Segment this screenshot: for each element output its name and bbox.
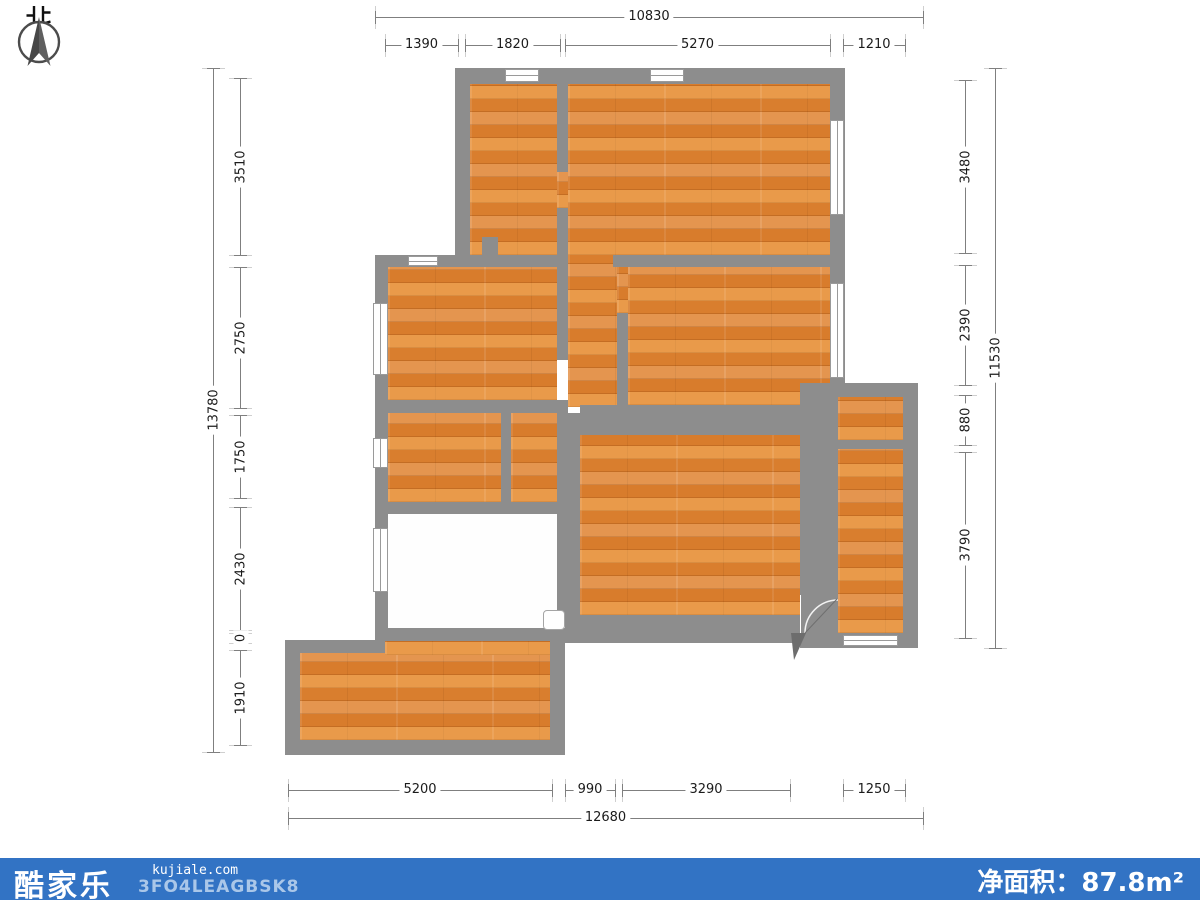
room-middle-left-floor [388, 267, 557, 400]
wall-below-midleft [375, 400, 568, 413]
room-bottom-left-floor-upper [385, 641, 550, 655]
dim-left-total: 13780 [213, 68, 214, 752]
room-unfloored [388, 514, 557, 628]
wall-interior-a1 [557, 84, 568, 172]
dim-left-seg-6: 1910 [240, 650, 241, 745]
wall-right-section-right [903, 383, 918, 648]
dim-bottom-seg-3: 3290 [622, 790, 790, 791]
dim-right-seg-2: 2390 [965, 265, 966, 385]
website-text: kujiale.com [152, 863, 238, 878]
window-right-1 [830, 120, 844, 215]
wall-unfloored-right [557, 413, 580, 615]
net-area-unit: m² [1146, 868, 1184, 898]
wall-interior-b [617, 313, 628, 407]
window-top-2 [650, 69, 684, 82]
dim-right-total: 11530 [995, 68, 996, 648]
window-top-1 [505, 69, 539, 82]
dim-top-seg-1: 1390 [385, 45, 458, 46]
dim-top-seg-3: 5270 [565, 45, 830, 46]
window-right-2 [830, 283, 844, 378]
floorplan-export: { "compass": { "north_label": "北" }, "di… [0, 0, 1200, 900]
corridor-floor [568, 255, 617, 407]
dim-left-seg-1: 3510 [240, 78, 241, 255]
dim-top-seg-4: 1210 [843, 45, 905, 46]
room-bottom-left-floor [300, 653, 550, 740]
room-right-corridor-floor [838, 449, 903, 633]
wall-midleft-top [375, 255, 568, 267]
dim-bottom-seg-1: 5200 [288, 790, 552, 791]
dim-right-seg-1: 3480 [965, 80, 966, 253]
window-bottom-right [843, 635, 898, 646]
wall-interior-a2 [557, 208, 568, 360]
dim-left-seg-3: 1750 [240, 415, 241, 498]
dim-bottom-total: 12680 [288, 818, 923, 819]
wall-stub [482, 237, 498, 257]
wall-bottomroom-left [285, 640, 300, 755]
window-midleft-top [408, 256, 438, 266]
window-left-3 [373, 528, 388, 592]
door-swing-icon [785, 575, 845, 670]
wall-right-section-divider [838, 440, 903, 449]
window-left-1 [373, 303, 388, 375]
wall-bottomroom-topright [375, 628, 565, 641]
wall-unfloored-top [375, 502, 580, 514]
wall-left-upper [455, 68, 470, 267]
wall-bottomroom-right [550, 628, 565, 755]
wall-small-rooms-divider [501, 413, 511, 502]
door-opening-floor [557, 172, 568, 208]
dim-right-seg-3: 880 [965, 395, 966, 445]
room-right-small-floor [838, 397, 903, 440]
door-leaf [543, 610, 565, 630]
wall-living-bottom [565, 615, 800, 643]
footer-bar: 酷家乐 kujiale.com 3FO4LEAGBSK8 净面积：87.8m² [0, 858, 1200, 900]
corridor-opening-floor [617, 267, 628, 313]
plan-code: 3FO4LEAGBSK8 [138, 877, 299, 897]
dim-top-seg-2: 1820 [465, 45, 560, 46]
dim-left-seg-4: 2430 [240, 507, 241, 630]
dim-bottom-seg-2: 990 [565, 790, 615, 791]
dim-bottom-seg-4: 1250 [843, 790, 905, 791]
kujiale-logo: 酷家乐 [14, 861, 113, 905]
net-area-label: 净面积： [977, 868, 1081, 898]
room-small-left-floor [388, 413, 501, 502]
wall-right-thick-upper [800, 383, 838, 595]
room-small-right-floor [511, 413, 557, 502]
north-compass: 北 [6, 2, 76, 82]
wall-living-top [580, 405, 830, 435]
dim-top-total: 10830 [375, 17, 923, 18]
window-left-2 [373, 438, 388, 468]
dim-left-seg-2: 2750 [240, 267, 241, 408]
net-area: 净面积：87.8m² [977, 862, 1184, 899]
net-area-value: 87.8 [1081, 868, 1145, 898]
dim-right-seg-4: 3790 [965, 452, 966, 638]
room-top-right-floor [568, 84, 830, 255]
wall-bottomroom-topleft [285, 640, 385, 653]
room-top-left-floor [470, 84, 557, 255]
dim-left-seg-5: 0 [240, 633, 241, 643]
room-living-floor [580, 435, 800, 615]
wall-bottomroom-bottom [285, 740, 565, 755]
north-compass-icon [6, 2, 76, 82]
wall-midright-top [613, 255, 845, 267]
